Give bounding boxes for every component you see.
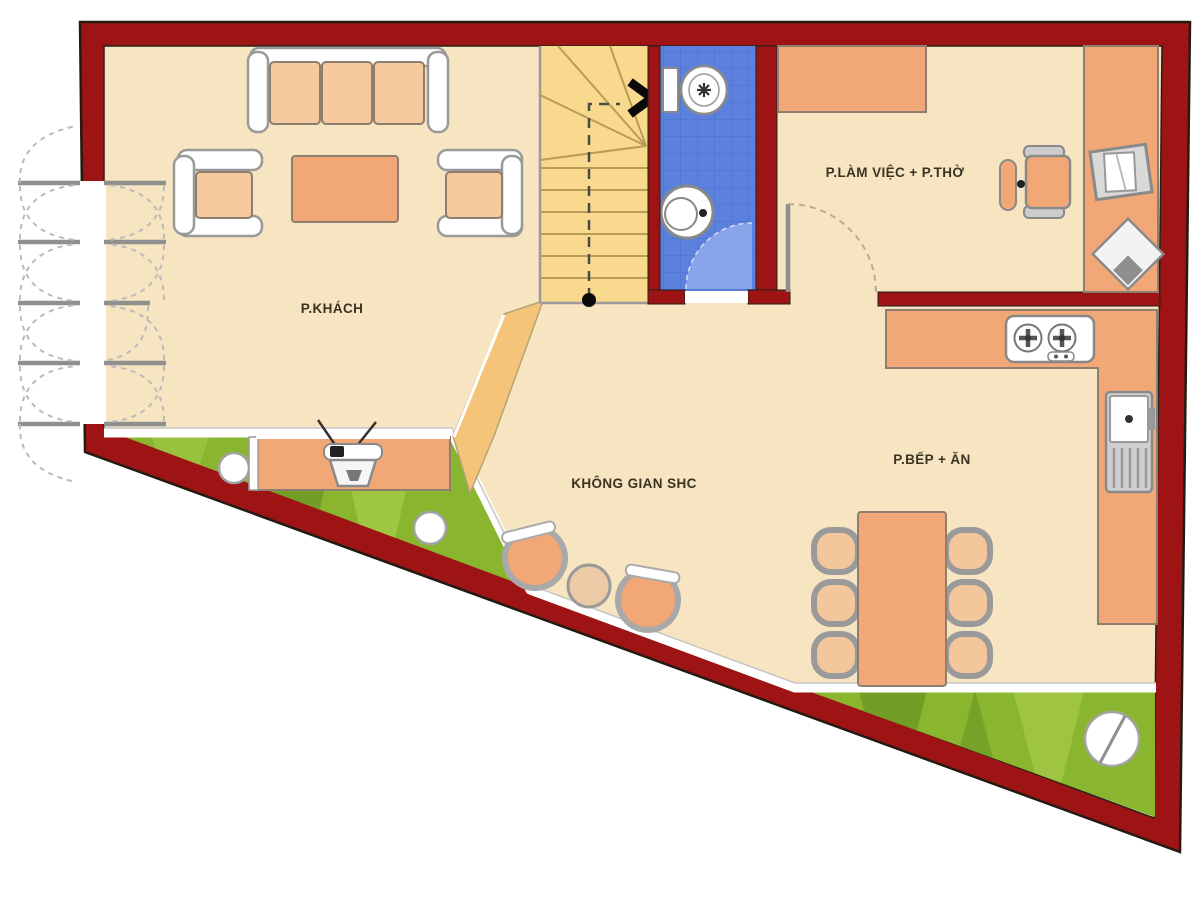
dining-table [858,512,946,686]
toilet [663,66,727,114]
bathroom-door-opening [685,291,748,303]
living-room-label: P.KHÁCH [301,301,364,316]
kitchen-dining-label: P.BẾP + ĂN [893,452,970,467]
dining-chair [946,582,990,624]
floor-plan-canvas: P.KHÁCH KHÔNG GIAN SHC P.LÀM VIỆC + P.TH… [0,0,1200,900]
floor-plan-drawing: P.KHÁCH KHÔNG GIAN SHC P.LÀM VIỆC + P.TH… [0,0,1200,900]
coffee-table [292,156,398,222]
work-worship-room-label: P.LÀM VIỆC + P.THỜ [826,165,965,180]
armchair-right [438,150,522,236]
wash-basin [661,186,713,238]
stepping-stone [1085,712,1139,766]
dining-set [814,512,990,686]
common-space-label: KHÔNG GIAN SHC [571,476,697,491]
stepping-stone [219,453,249,483]
armchair-left [174,150,262,236]
sink-unit [1106,392,1155,492]
worship-cabinet [778,46,926,112]
dining-chair [814,634,858,676]
side-table [568,565,610,607]
sofa [248,48,448,132]
staircase [540,46,652,307]
dining-chair [814,582,858,624]
monitor [1090,144,1152,199]
stepping-stone [414,512,446,544]
dining-chair [814,530,858,572]
stove [1006,316,1094,362]
bathroom [660,46,757,291]
dining-chair [946,634,990,676]
dining-chair [946,530,990,572]
